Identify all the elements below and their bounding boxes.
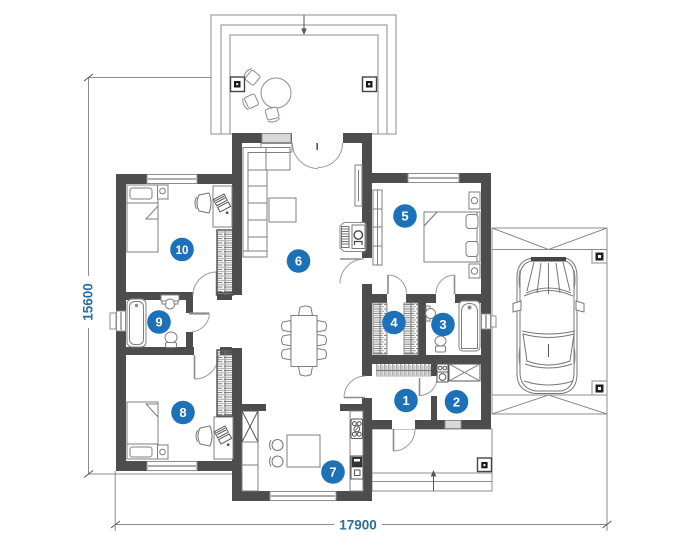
svg-text:3: 3 — [439, 317, 446, 332]
svg-text:8: 8 — [179, 405, 186, 420]
svg-text:4: 4 — [390, 315, 398, 330]
svg-text:5: 5 — [401, 209, 408, 224]
svg-text:15600: 15600 — [81, 283, 96, 321]
svg-text:7: 7 — [329, 465, 336, 480]
svg-text:1: 1 — [402, 393, 409, 408]
svg-text:6: 6 — [295, 254, 302, 269]
svg-text:9: 9 — [155, 315, 162, 330]
svg-text:17900: 17900 — [339, 518, 377, 533]
svg-text:10: 10 — [176, 245, 189, 257]
svg-text:2: 2 — [453, 395, 460, 410]
